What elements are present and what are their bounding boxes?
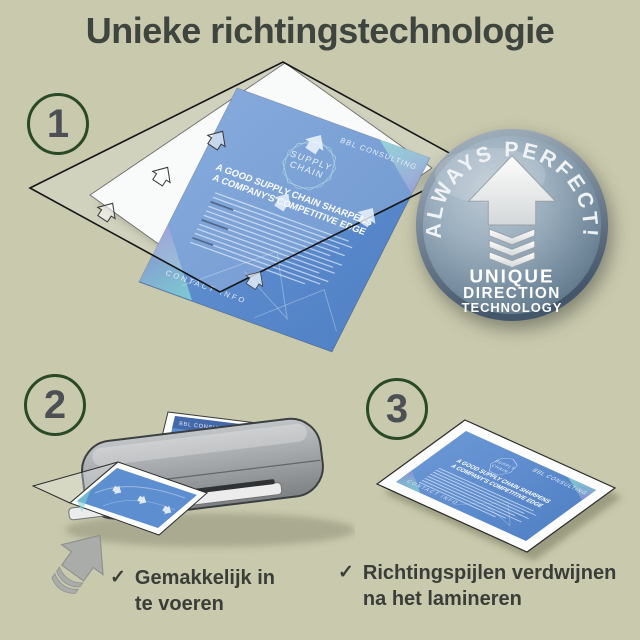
checkmark-icon: ✓: [110, 566, 126, 617]
benefit-text: Richtingspijlen verdwijnen na het lamine…: [363, 560, 616, 612]
step-2-number: 2: [24, 374, 86, 436]
step1-illustration: BBL CONSULTING SUPPLY CHAIN A GOOD SUPPL…: [15, 52, 460, 362]
checkmark-icon: ✓: [338, 561, 354, 612]
direction-badge: ALWAYS PERFECT! UNIQUE DIRECTION TECHNOL…: [413, 126, 611, 324]
benefit-item-arrows-disappear: ✓ Richtingspijlen verdwijnen na het lami…: [338, 560, 616, 612]
laminated-document: BBL CONSULTING SUPPLY CHAIN A GOOD SUPPL…: [377, 420, 615, 552]
step-1-label: 1: [47, 102, 69, 147]
badge-line3: TECHNOLOGY: [462, 300, 563, 315]
benefit-text: Gemakkelijk in te voeren: [135, 565, 275, 617]
step-3-label: 3: [386, 387, 408, 432]
product-infographic: Unieke richtingstechnologie 1 2 3: [0, 0, 640, 640]
laminating-pouch: [30, 62, 460, 292]
page-title: Unieke richtingstechnologie: [0, 10, 640, 52]
step-3-number: 3: [366, 378, 428, 440]
benefit-item-easy-feed: ✓ Gemakkelijk in te voeren: [110, 565, 275, 617]
badge-line1: UNIQUE: [470, 265, 555, 286]
step-2-label: 2: [44, 383, 66, 428]
step-1-number: 1: [27, 93, 89, 155]
